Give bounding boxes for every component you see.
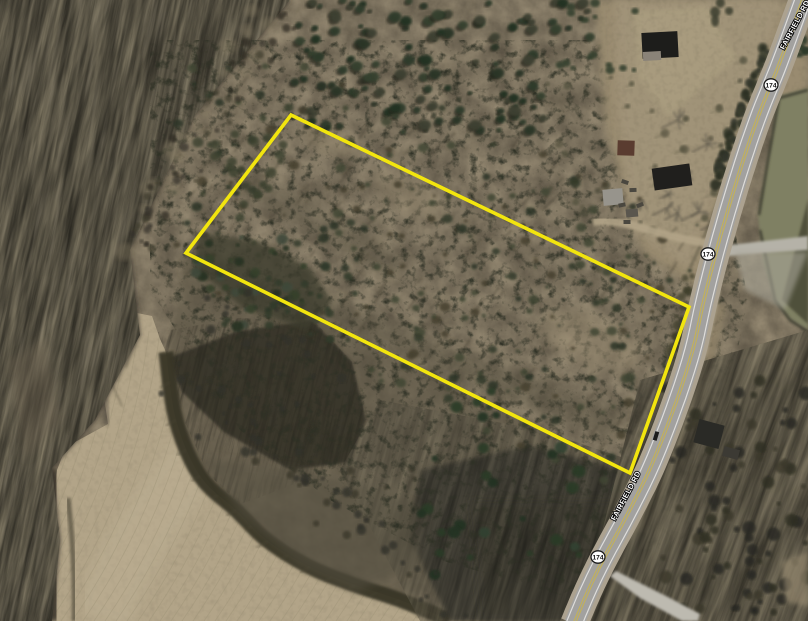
svg-text:174: 174 (592, 554, 603, 561)
svg-text:174: 174 (702, 251, 713, 258)
svg-text:174: 174 (765, 82, 776, 89)
